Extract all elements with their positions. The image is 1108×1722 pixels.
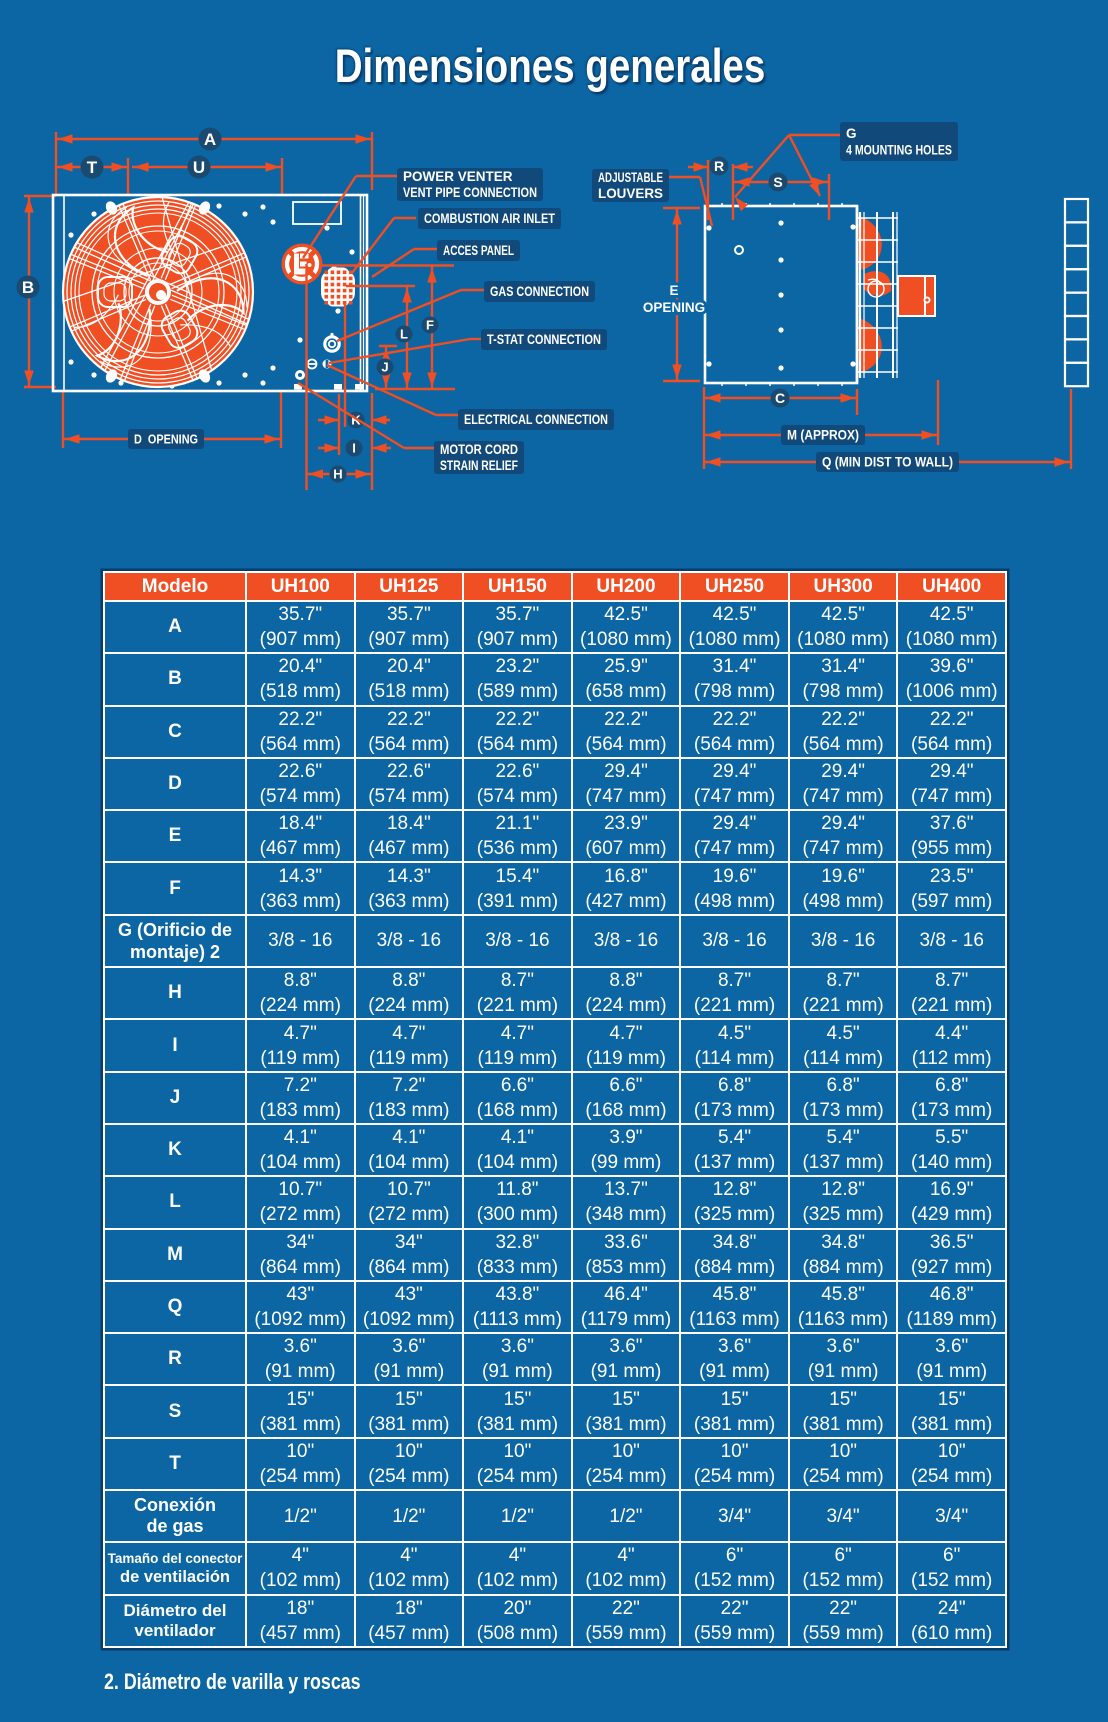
svg-text:C: C	[775, 390, 785, 406]
svg-text:LOUVERS: LOUVERS	[598, 186, 663, 201]
svg-text:S: S	[773, 174, 782, 190]
svg-text:T-STAT CONNECTION: T-STAT CONNECTION	[487, 332, 601, 347]
svg-text:R: R	[714, 158, 724, 174]
svg-text:4 MOUNTING HOLES: 4 MOUNTING HOLES	[846, 143, 952, 158]
svg-text:POWER VENTER: POWER VENTER	[403, 169, 513, 184]
svg-text:B: B	[22, 278, 34, 297]
svg-text:D OPENING: D OPENING	[134, 432, 198, 447]
svg-text:J: J	[381, 359, 388, 374]
svg-text:F: F	[426, 317, 434, 332]
svg-text:T: T	[87, 158, 98, 177]
svg-text:STRAIN RELIEF: STRAIN RELIEF	[440, 458, 518, 473]
svg-text:ACCES PANEL: ACCES PANEL	[443, 243, 514, 258]
svg-text:L: L	[400, 326, 408, 341]
svg-text:ADJUSTABLE: ADJUSTABLE	[598, 170, 663, 185]
svg-text:E: E	[669, 283, 678, 298]
svg-text:H: H	[333, 466, 342, 481]
svg-text:ELECTRICAL CONNECTION: ELECTRICAL CONNECTION	[464, 412, 608, 427]
svg-text:Q (MIN DIST TO WALL): Q (MIN DIST TO WALL)	[822, 455, 953, 470]
svg-text:MOTOR CORD: MOTOR CORD	[440, 442, 518, 457]
svg-text:A: A	[204, 130, 216, 149]
svg-text:U: U	[193, 158, 205, 177]
svg-text:COMBUSTION AIR INLET: COMBUSTION AIR INLET	[424, 211, 556, 226]
svg-text:M (APPROX): M (APPROX)	[787, 428, 859, 443]
svg-text:VENT PIPE CONNECTION: VENT PIPE CONNECTION	[403, 185, 537, 200]
svg-text:GAS CONNECTION: GAS CONNECTION	[490, 284, 589, 299]
svg-text:I: I	[352, 440, 356, 455]
svg-text:OPENING: OPENING	[643, 300, 705, 315]
svg-text:G: G	[846, 126, 857, 141]
